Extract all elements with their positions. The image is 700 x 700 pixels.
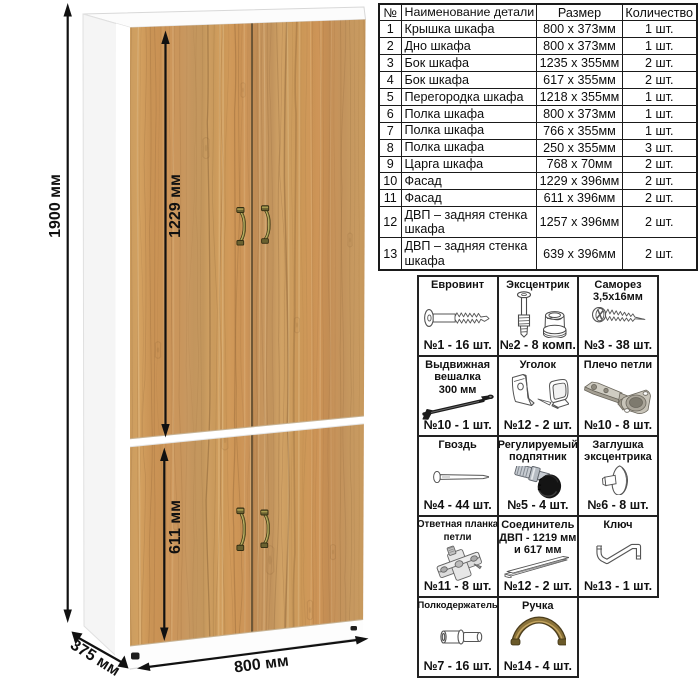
svg-text:611 мм: 611 мм <box>167 500 184 554</box>
svg-text:800 мм: 800 мм <box>233 653 290 677</box>
svg-text:1900 мм: 1900 мм <box>47 174 64 238</box>
svg-text:1229 мм: 1229 мм <box>167 174 184 238</box>
